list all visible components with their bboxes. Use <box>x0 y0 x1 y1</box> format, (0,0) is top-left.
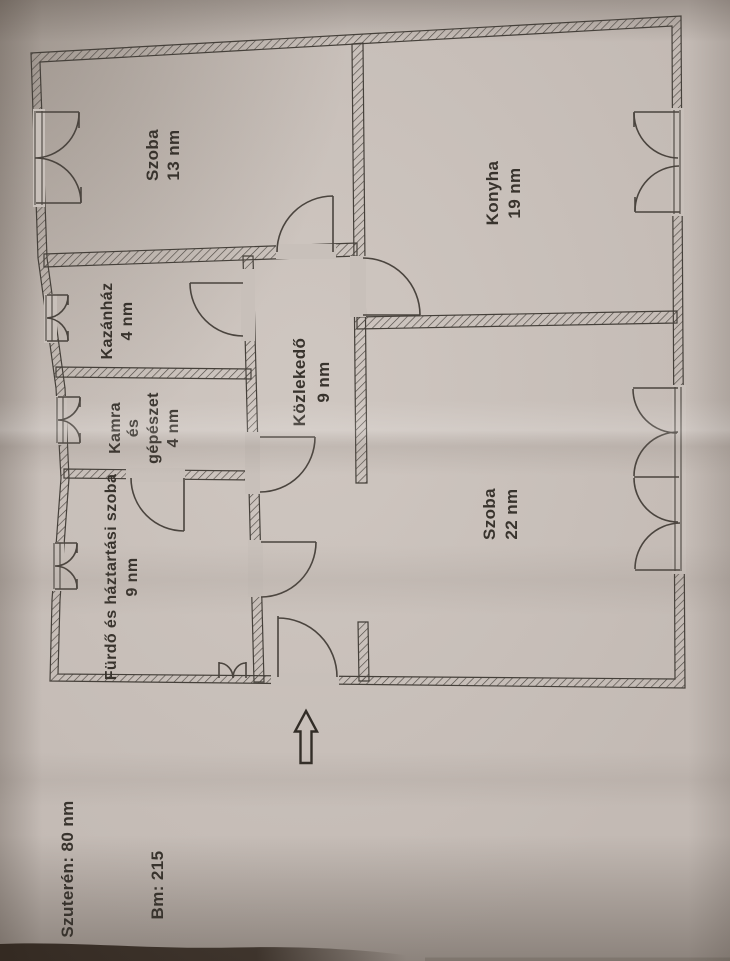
floorplan-photo: Szoba 13 nm Konyha 19 nm Kazánház 4 nm K… <box>0 0 730 961</box>
wall-corridor-right-stub <box>358 622 369 681</box>
paper-crease-upper <box>0 400 730 475</box>
room-area: 9 nm <box>314 361 333 402</box>
room-name: Szoba <box>143 129 162 181</box>
room-area: 4 nm <box>119 302 136 341</box>
paper-right-shadow <box>688 0 730 961</box>
opening-window-konyha <box>671 108 684 216</box>
room-name: Kazánház <box>99 283 116 360</box>
opening-szoba13-door <box>276 244 336 259</box>
room-name: Konyha <box>483 160 502 225</box>
basement-area-text: Szuterén: 80 nm <box>58 800 77 937</box>
photo-edge-shadow-faint <box>425 958 730 961</box>
building-height-text: Bm: 215 <box>148 851 167 920</box>
opening-kazanhaz-door <box>241 269 255 341</box>
paper-bottom-shadow <box>0 835 730 961</box>
opening-konyha-door <box>350 256 366 317</box>
paper-crease-lower <box>0 752 730 807</box>
building-height-label: Bm: 215 <box>148 851 167 920</box>
room-name: Szoba <box>480 488 499 540</box>
floorplan-svg: Szoba 13 nm Konyha 19 nm Kazánház 4 nm K… <box>0 0 730 961</box>
room-area: 19 nm <box>505 167 524 218</box>
basement-area-label: Szuterén: 80 nm <box>58 800 77 937</box>
room-area: 22 nm <box>502 488 521 539</box>
wall-kazanhaz-kamra <box>56 367 251 379</box>
room-area: 13 nm <box>164 129 183 180</box>
opening-entrance <box>271 673 339 686</box>
paper-crease-mid <box>0 545 730 615</box>
